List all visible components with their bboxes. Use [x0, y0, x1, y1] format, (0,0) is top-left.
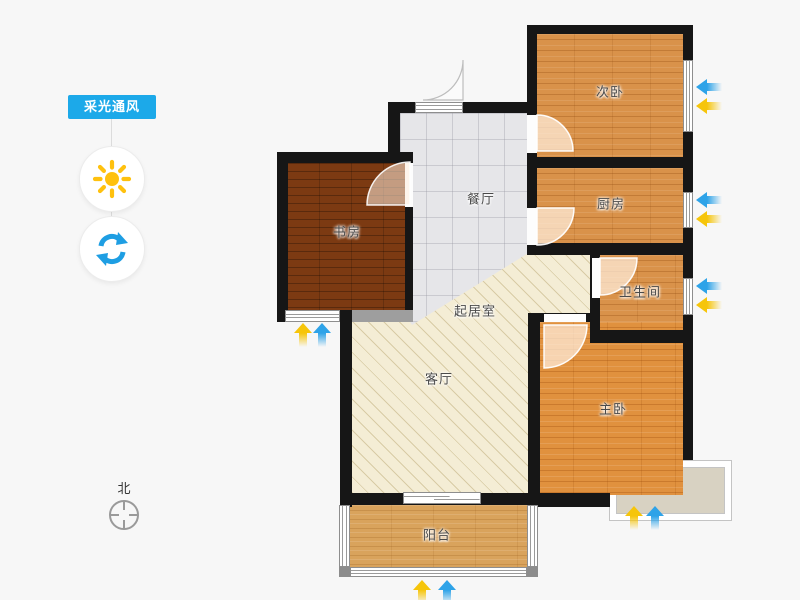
airflow-arrow-yellow [625, 506, 643, 530]
airflow-arrow-blue [313, 323, 331, 347]
wall [528, 493, 610, 507]
airflow-arrow-yellow [413, 580, 431, 600]
refresh-icon [94, 231, 130, 267]
balcony-corner [339, 567, 350, 577]
airflow-arrow-yellow [294, 323, 312, 347]
door-master-bedroom [544, 314, 586, 322]
airflow-arrow-blue [696, 79, 722, 95]
door-bathroom [592, 258, 600, 298]
door-study [405, 163, 413, 207]
door-kitchen [527, 208, 537, 245]
compass-north-label: 北 [117, 481, 130, 496]
window-kitchen [683, 192, 693, 228]
airflow-arrow-blue [696, 278, 722, 294]
label-kitchen: 厨房 [597, 194, 625, 213]
label-bathroom: 卫生间 [619, 282, 661, 301]
window-study [285, 310, 340, 322]
wall [527, 157, 693, 168]
label-master-bedroom: 主卧 [599, 399, 627, 418]
sliding-door-balcony [403, 492, 481, 504]
label-study: 书房 [333, 222, 361, 241]
airflow-arrow-yellow [696, 98, 722, 114]
label-secondary-bedroom: 次卧 [596, 82, 624, 101]
airflow-arrow-blue [646, 506, 664, 530]
balcony-window-right [527, 505, 538, 567]
entry-door-arc [423, 60, 463, 100]
balcony-window-left [339, 505, 350, 567]
label-dining: 餐厅 [467, 189, 495, 208]
window-secondary-bedroom [683, 60, 693, 132]
compass: 北 [100, 477, 148, 535]
label-parlor: 客厅 [425, 369, 453, 388]
door-secondary-bedroom [527, 115, 537, 153]
airflow-arrow-blue [696, 192, 722, 208]
sun-icon [92, 159, 132, 199]
airflow-arrow-yellow [696, 211, 722, 227]
wall [340, 310, 352, 507]
entry-threshold [415, 102, 463, 113]
refresh-button[interactable] [79, 216, 145, 282]
wall [277, 152, 413, 163]
label-living: 起居室 [454, 301, 496, 320]
wall [527, 25, 693, 34]
wall [590, 330, 693, 343]
lighting-ventilation-toggle[interactable]: 采光通风 [68, 95, 156, 119]
wall [527, 243, 693, 255]
floorplan-canvas: 采光通风 北 [0, 0, 800, 600]
wall [528, 313, 540, 505]
wall [348, 310, 413, 322]
wall [277, 152, 288, 322]
sun-button[interactable] [79, 146, 145, 212]
label-balcony: 阳台 [423, 525, 451, 544]
airflow-arrow-yellow [696, 297, 722, 313]
balcony-corner [527, 567, 538, 577]
airflow-arrow-blue [438, 580, 456, 600]
window-bathroom [683, 278, 693, 315]
balcony-window-bottom [350, 567, 527, 577]
